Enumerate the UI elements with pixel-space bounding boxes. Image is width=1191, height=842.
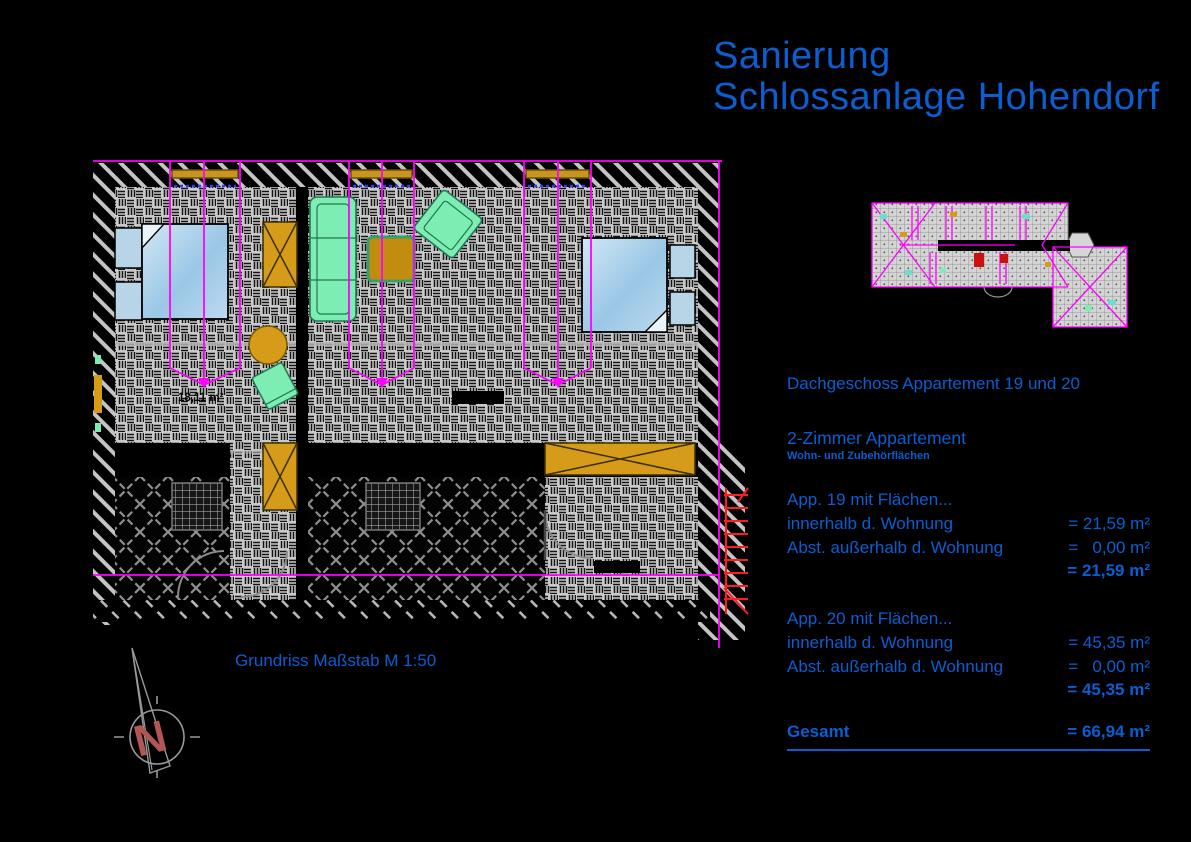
app20-row-inside: innerhalb d. Wohnung = 45,35 m²	[787, 633, 1150, 653]
room-area-label: 18,11 m²	[178, 392, 224, 404]
coffee-table	[368, 237, 414, 281]
app19-row-outside: Abst. außerhalb d. Wohnung = 0,00 m²	[787, 538, 1150, 558]
gesamt-value: = 66,94 m²	[1067, 722, 1150, 742]
north-letter: N	[129, 711, 172, 766]
row-label: Abst. außerhalb d. Wohnung	[787, 657, 1003, 676]
shower-1	[172, 483, 222, 530]
app20-title: App. 20 mit Flächen...	[787, 609, 1150, 629]
app20-row-outside: Abst. außerhalb d. Wohnung = 0,00 m²	[787, 657, 1150, 677]
plan-caption: Grundriss Maßstab M 1:50	[235, 651, 436, 671]
balcony	[984, 287, 1012, 297]
apartment-type: 2-Zimmer Appartement	[787, 428, 966, 449]
north-arrow: N	[114, 648, 200, 778]
row-value: = 21,59 m²	[1068, 514, 1150, 534]
shower-2	[366, 483, 420, 530]
wardrobe-2	[263, 443, 297, 510]
wardrobe-1	[263, 222, 297, 287]
section-heading: Dachgeschoss Appartement 19 und 20	[787, 374, 1080, 394]
apartment-type-note: Wohn- und Zubehörflächen	[787, 450, 930, 462]
app19-row-inside: innerhalb d. Wohnung = 21,59 m²	[787, 514, 1150, 534]
row-label: innerhalb d. Wohnung	[787, 514, 953, 533]
row-label: innerhalb d. Wohnung	[787, 633, 953, 652]
app19-title: App. 19 mit Flächen...	[787, 490, 1150, 510]
bathrooms	[115, 477, 591, 600]
gesamt-label: Gesamt	[787, 722, 849, 741]
redacted-label-2	[594, 561, 640, 573]
overview-plan	[872, 203, 1127, 327]
redacted-label-1	[452, 391, 504, 404]
row-value: = 0,00 m²	[1068, 657, 1150, 677]
gesamt-row: Gesamt = 66,94 m²	[787, 722, 1150, 751]
tower	[1066, 233, 1094, 257]
row-value: = 45,35 m²	[1068, 633, 1150, 653]
sheet-title: Sanierung Schlossanlage Hohendorf	[713, 36, 1160, 118]
wardrobe-3	[545, 443, 695, 475]
total-value: = 21,59 m²	[1067, 561, 1150, 581]
drawing-sheet: 18,11 m²	[0, 0, 1191, 842]
sheet-title-line1: Sanierung	[713, 36, 1160, 77]
round-table	[249, 326, 287, 364]
row-value: = 0,00 m²	[1068, 538, 1150, 558]
total-value: = 45,35 m²	[1067, 680, 1150, 700]
floorplan-canvas: 18,11 m²	[0, 0, 1191, 842]
row-label: Abst. außerhalb d. Wohnung	[787, 538, 1003, 557]
sheet-title-line2: Schlossanlage Hohendorf	[713, 77, 1160, 118]
